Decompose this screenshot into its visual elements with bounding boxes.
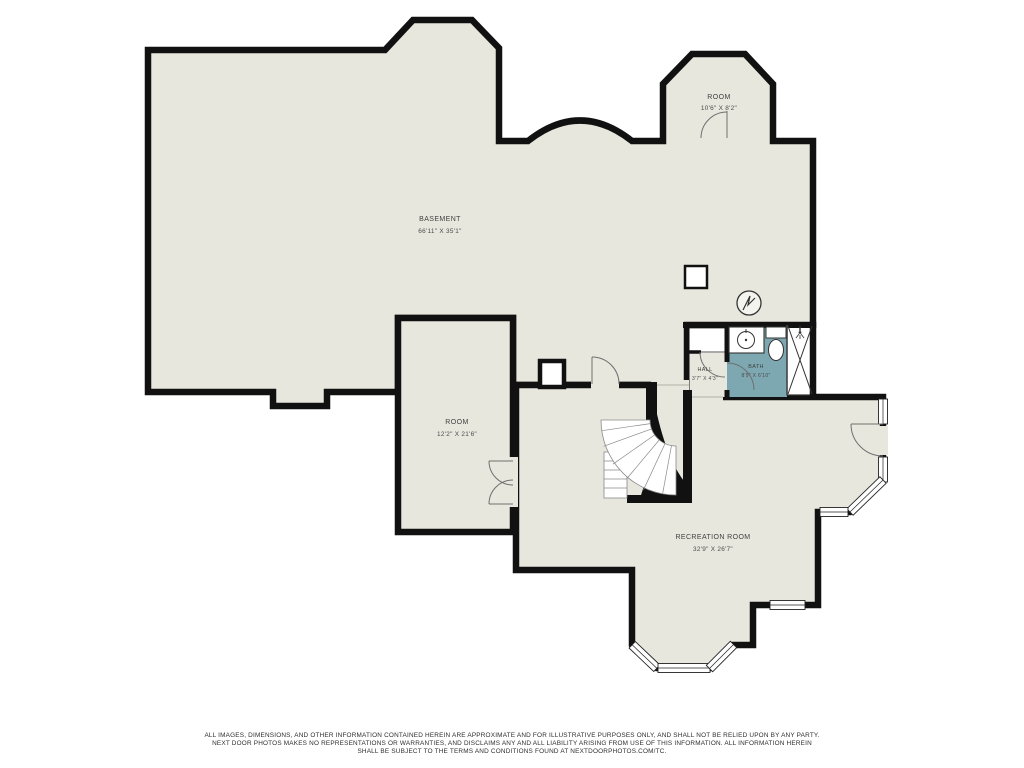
basement-label: BASEMENT bbox=[419, 216, 461, 223]
duct-chase bbox=[540, 361, 564, 387]
disclaimer-line-2: NEXT DOOR PHOTOS MAKES NO REPRESENTATION… bbox=[0, 740, 1024, 748]
recreation-room-floor bbox=[516, 385, 883, 668]
water-heater-icon bbox=[737, 291, 761, 315]
hall-label: HALL bbox=[697, 367, 712, 373]
room-left-label: ROOM bbox=[445, 419, 468, 426]
window-icon bbox=[770, 601, 805, 610]
floor-plan: BASEMENT 66'11" X 35'1" ROOM 10'6" X 8'2… bbox=[0, 0, 1024, 768]
support-column bbox=[685, 266, 707, 288]
closet bbox=[688, 328, 726, 352]
bath-label: BATH bbox=[748, 364, 764, 370]
recreation-label: RECREATION ROOM bbox=[675, 534, 750, 541]
disclaimer: ALL IMAGES, DIMENSIONS, AND OTHER INFORM… bbox=[0, 732, 1024, 755]
room-left-dims: 12'2" X 21'6" bbox=[437, 431, 477, 438]
window-icon bbox=[879, 399, 888, 424]
window-icon bbox=[820, 508, 848, 517]
disclaimer-line-3: SHALL BE SUBJECT TO THE TERMS AND CONDIT… bbox=[0, 748, 1024, 756]
window-icon bbox=[658, 664, 710, 673]
recreation-dims: 32'9" X 26'7" bbox=[693, 546, 733, 553]
room-top-label: ROOM bbox=[707, 94, 730, 101]
room-top-dims: 10'6" X 8'2" bbox=[701, 105, 737, 112]
hall-floor bbox=[687, 353, 727, 397]
bath-dims: 8'9" X 6'10" bbox=[741, 373, 770, 379]
hall-dims: 3'7" X 4'3" bbox=[692, 376, 718, 382]
basement-dims: 66'11" X 35'1" bbox=[418, 228, 461, 235]
disclaimer-line-1: ALL IMAGES, DIMENSIONS, AND OTHER INFORM… bbox=[0, 732, 1024, 740]
